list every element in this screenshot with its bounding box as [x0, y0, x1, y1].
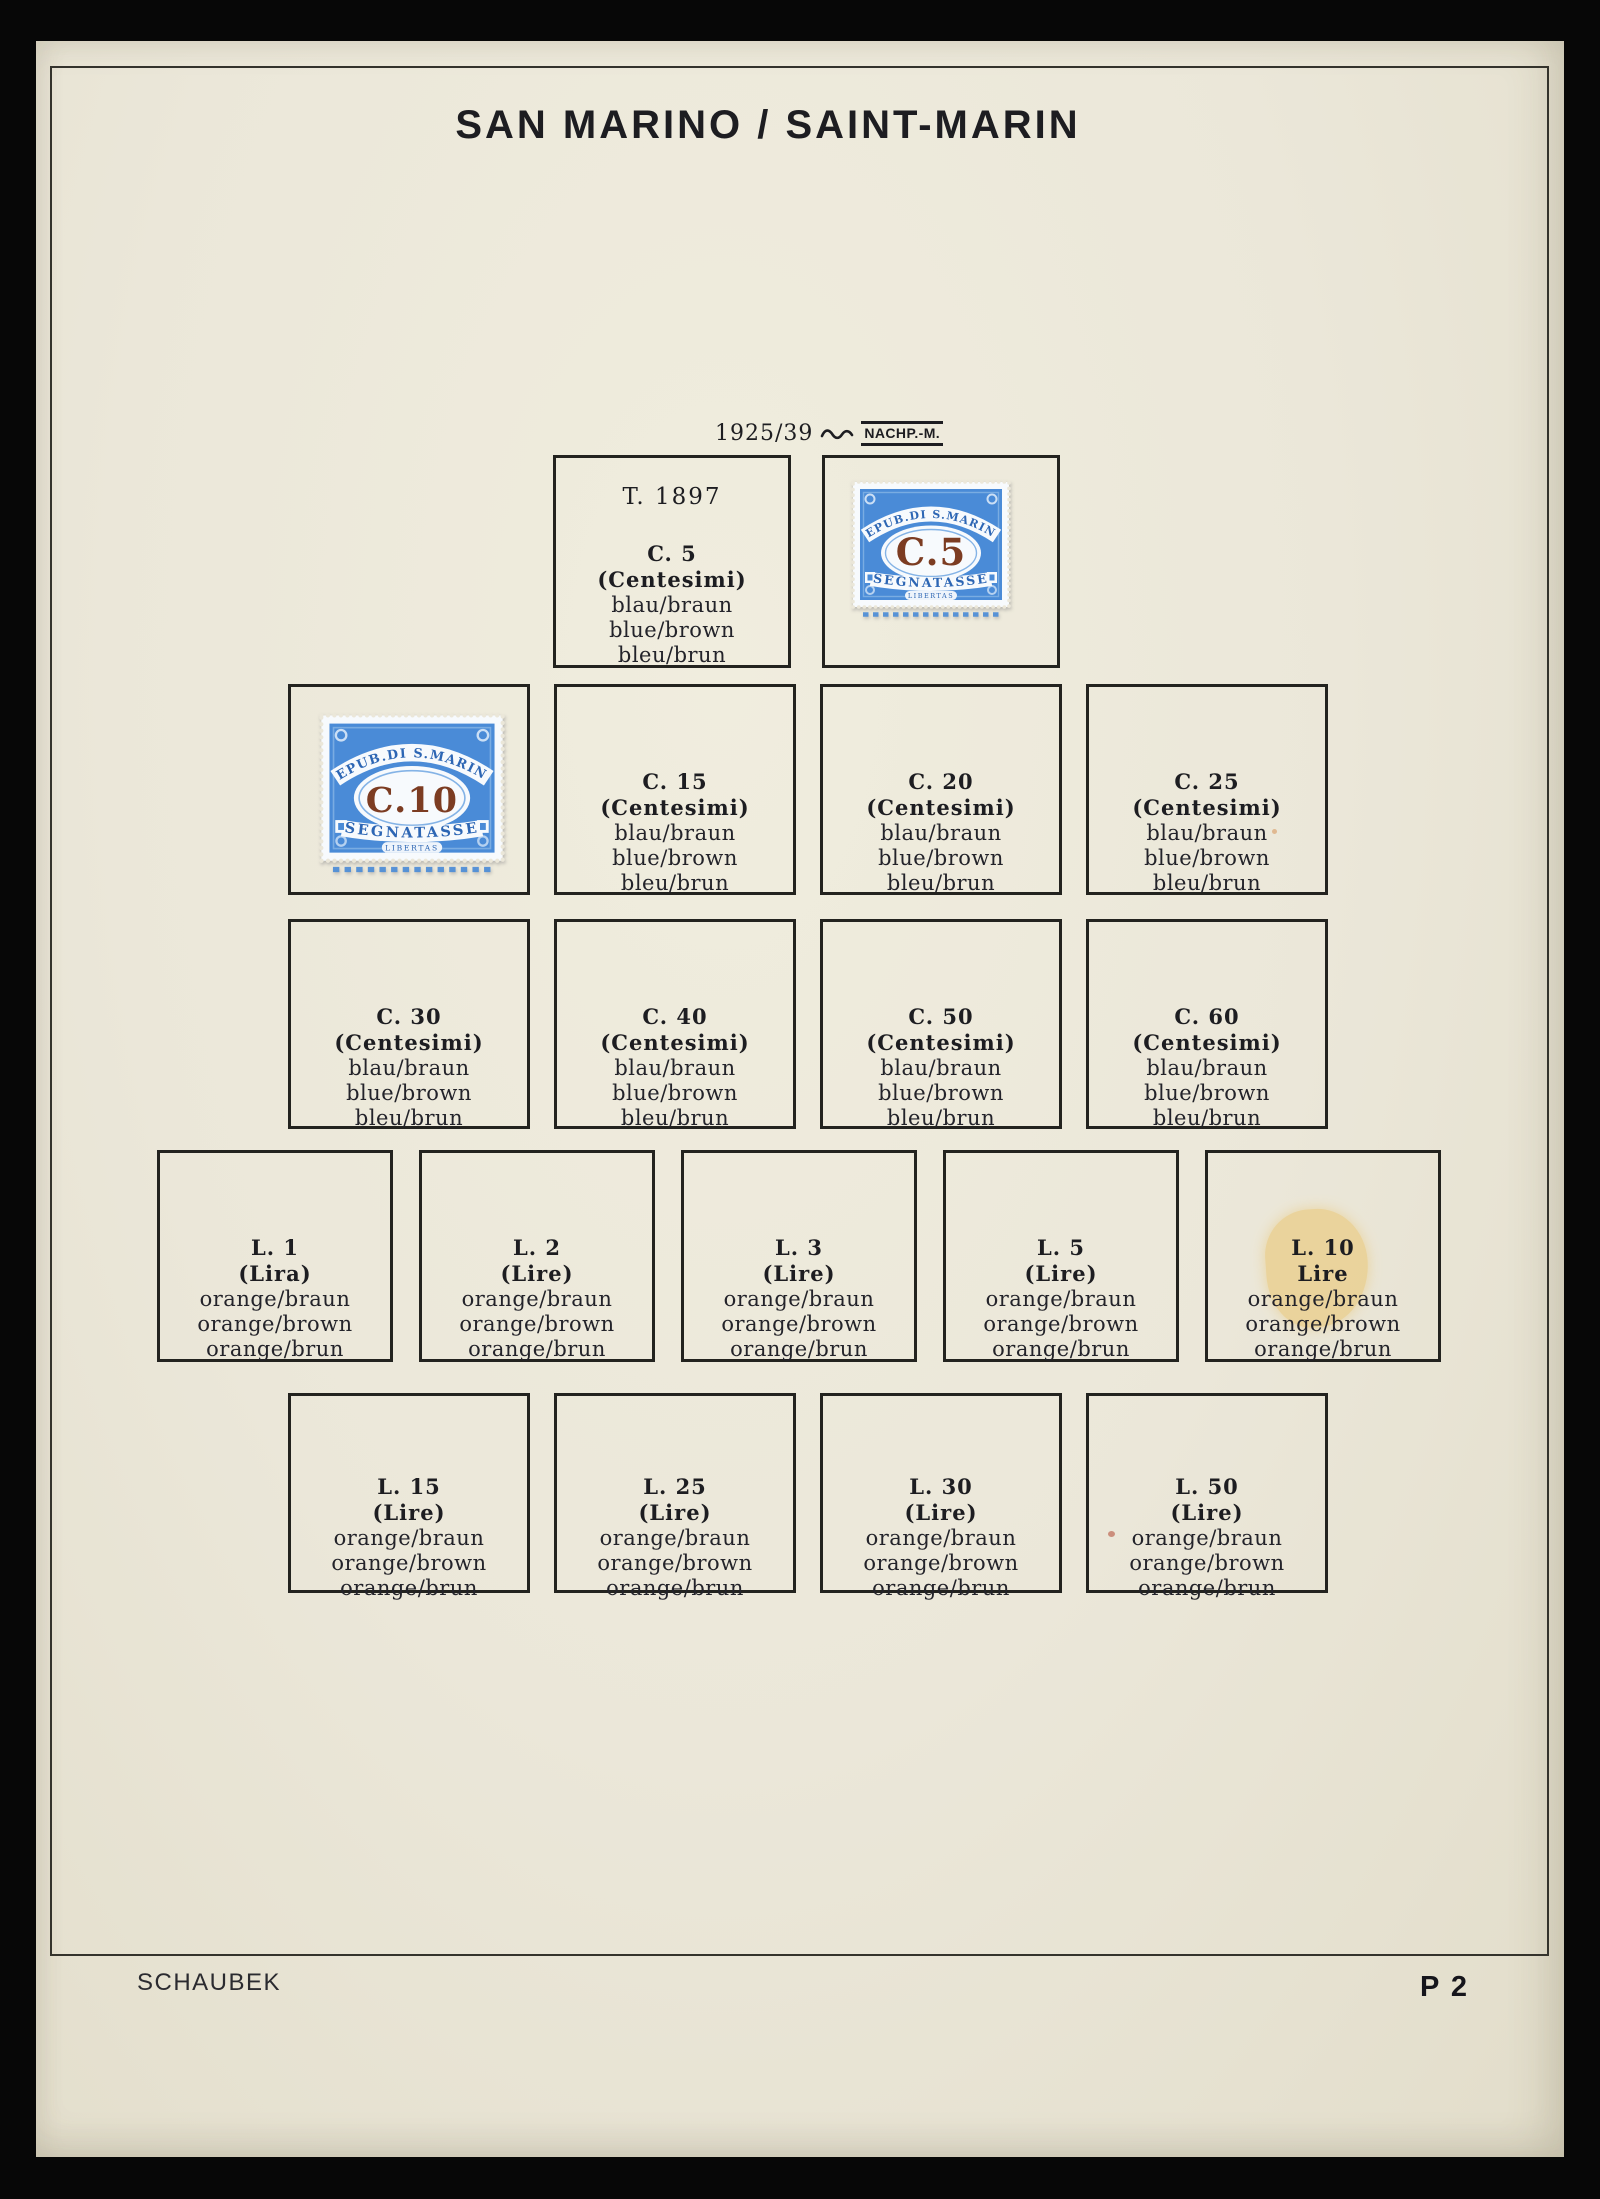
denomination-label: C. 25 [1089, 769, 1325, 795]
series-header: 1925/39 NACHP.-M. [715, 421, 943, 446]
stamp-description: C. 15(Centesimi)blau/braunblue/brownbleu… [557, 769, 793, 896]
stamp-description: L. 3(Lire)orange/braunorange/brownorange… [684, 1235, 914, 1362]
currency-label: (Centesimi) [557, 795, 793, 821]
stamp-description: C. 50(Centesimi)blau/braunblue/brownbleu… [823, 1004, 1059, 1131]
currency-label: (Lire) [823, 1500, 1059, 1526]
denomination-label: L. 50 [1089, 1474, 1325, 1500]
color-description: orange/braun [557, 1526, 793, 1551]
currency-label: (Lire) [422, 1261, 652, 1287]
currency-label: (Lire) [1089, 1500, 1325, 1526]
denomination-label: L. 5 [946, 1235, 1176, 1261]
stamp-slot-c5: REPUB.DI S.MARINO C.5 SEGNATASSE LIBERTA… [822, 455, 1060, 668]
color-description: orange/brown [823, 1551, 1059, 1576]
stamp-description: L. 5(Lire)orange/braunorange/brownorange… [946, 1235, 1176, 1362]
currency-label: (Centesimi) [1089, 795, 1325, 821]
color-description: blau/braun [823, 1056, 1059, 1081]
denomination-label: C. 20 [823, 769, 1059, 795]
stamp-slot-c60: C. 60(Centesimi)blau/braunblue/brownbleu… [1086, 919, 1328, 1129]
color-description: orange/braun [1089, 1526, 1325, 1551]
stamp-description: L. 50(Lire)orange/braunorange/brownorang… [1089, 1474, 1325, 1601]
denomination-label: C. 5 [556, 541, 788, 567]
color-description: blue/brown [291, 1081, 527, 1106]
stamp-slot-l3: L. 3(Lire)orange/braunorange/brownorange… [681, 1150, 917, 1362]
stamp-description: L. 15(Lire)orange/braunorange/brownorang… [291, 1474, 527, 1601]
color-description: orange/brown [291, 1551, 527, 1576]
denomination-label: L. 15 [291, 1474, 527, 1500]
stamp-slot-c40: C. 40(Centesimi)blau/braunblue/brownbleu… [554, 919, 796, 1129]
color-description: orange/brun [557, 1576, 793, 1601]
color-description: orange/brun [160, 1337, 390, 1362]
color-description: blue/brown [823, 846, 1059, 871]
stamp-description: C. 40(Centesimi)blau/braunblue/brownbleu… [557, 1004, 793, 1131]
color-description: orange/braun [422, 1287, 652, 1312]
denomination-label: L. 1 [160, 1235, 390, 1261]
color-description: blau/braun [556, 593, 788, 618]
mounted-stamp: REPUB.DI S.MARINO C.5 SEGNATASSE LIBERTA… [851, 480, 1011, 624]
svg-text:C.5: C.5 [896, 530, 966, 574]
currency-label: (Centesimi) [1089, 1030, 1325, 1056]
color-description: orange/brown [1208, 1312, 1438, 1337]
color-description: blue/brown [557, 1081, 793, 1106]
currency-label: (Lire) [557, 1500, 793, 1526]
color-description: orange/brown [684, 1312, 914, 1337]
color-description: blau/braun [1089, 821, 1325, 846]
stamp-description: L. 25(Lire)orange/braunorange/brownorang… [557, 1474, 793, 1601]
color-description: orange/braun [823, 1526, 1059, 1551]
color-description: blau/braun [557, 821, 793, 846]
currency-label: (Centesimi) [823, 1030, 1059, 1056]
color-description: bleu/brun [557, 871, 793, 896]
denomination-label: C. 15 [557, 769, 793, 795]
color-description: blau/braun [291, 1056, 527, 1081]
stamp-slot-l5: L. 5(Lire)orange/braunorange/brownorange… [943, 1150, 1179, 1362]
color-description: orange/brun [1208, 1337, 1438, 1362]
stamp-description: L. 10Lireorange/braunorange/brownorange/… [1208, 1235, 1438, 1362]
stamp-slot-c15: C. 15(Centesimi)blau/braunblue/brownbleu… [554, 684, 796, 895]
stamp-slot-l2: L. 2(Lire)orange/braunorange/brownorange… [419, 1150, 655, 1362]
wave-separator-icon [820, 427, 854, 441]
color-description: blue/brown [1089, 846, 1325, 871]
denomination-label: L. 3 [684, 1235, 914, 1261]
svg-text:C.10: C.10 [366, 780, 458, 821]
color-description: orange/brun [291, 1576, 527, 1601]
currency-label: (Lire) [684, 1261, 914, 1287]
color-description: orange/brun [946, 1337, 1176, 1362]
denomination-label: L. 25 [557, 1474, 793, 1500]
currency-label: (Lire) [946, 1261, 1176, 1287]
denomination-label: L. 2 [422, 1235, 652, 1261]
mounted-stamp: REPUB.DI S.MARINO C.10 SEGNATASSE LIBERT… [319, 713, 505, 880]
stamp-slot-c50: C. 50(Centesimi)blau/braunblue/brownbleu… [820, 919, 1062, 1129]
color-description: bleu/brun [823, 871, 1059, 896]
color-description: blue/brown [1089, 1081, 1325, 1106]
currency-label: (Lira) [160, 1261, 390, 1287]
color-description: bleu/brun [557, 1106, 793, 1131]
stamp-slot-l15: L. 15(Lire)orange/braunorange/brownorang… [288, 1393, 530, 1593]
stamp-slot-l30: L. 30(Lire)orange/braunorange/brownorang… [820, 1393, 1062, 1593]
publisher-imprint: SCHAUBEK [137, 1969, 281, 1997]
color-description: orange/braun [1208, 1287, 1438, 1312]
stamp-slot-l50: L. 50(Lire)orange/braunorange/brownorang… [1086, 1393, 1328, 1593]
scanned-album-page: SAN MARINO / SAINT-MARIN 1925/39 NACHP.-… [0, 0, 1600, 2199]
page-number: P 2 [1420, 1971, 1469, 2004]
stamp-description: C. 30(Centesimi)blau/braunblue/brownbleu… [291, 1004, 527, 1131]
currency-label: (Centesimi) [291, 1030, 527, 1056]
color-description: orange/brown [1089, 1551, 1325, 1576]
stamp-description: L. 1(Lira)orange/braunorange/brownorange… [160, 1235, 390, 1362]
stamp-description: C. 25(Centesimi)blau/braunblue/brownbleu… [1089, 769, 1325, 896]
stamp-slot-c5: T. 1897C. 5(Centesimi)blau/braunblue/bro… [553, 455, 791, 668]
stamp-slot-l1: L. 1(Lira)orange/braunorange/brownorange… [157, 1150, 393, 1362]
color-description: orange/brown [160, 1312, 390, 1337]
color-description: bleu/brun [556, 643, 788, 668]
type-year-note: T. 1897 [556, 484, 788, 510]
denomination-label: L. 10 [1208, 1235, 1438, 1261]
svg-text:LIBERTAS: LIBERTAS [385, 843, 439, 852]
series-years: 1925/39 [715, 421, 813, 446]
page-title: SAN MARINO / SAINT-MARIN [36, 103, 1500, 148]
stamp-description: C. 5(Centesimi)blau/braunblue/brownbleu/… [556, 541, 788, 668]
color-description: blue/brown [557, 846, 793, 871]
currency-label: Lire [1208, 1261, 1438, 1287]
color-description: orange/brown [422, 1312, 652, 1337]
denomination-label: C. 60 [1089, 1004, 1325, 1030]
stamp-description: L. 2(Lire)orange/braunorange/brownorange… [422, 1235, 652, 1362]
stamp-slot-c25: C. 25(Centesimi)blau/braunblue/brownbleu… [1086, 684, 1328, 895]
album-page: SAN MARINO / SAINT-MARIN 1925/39 NACHP.-… [36, 41, 1564, 2157]
currency-label: (Centesimi) [556, 567, 788, 593]
color-description: orange/brun [823, 1576, 1059, 1601]
color-description: bleu/brun [1089, 871, 1325, 896]
color-description: orange/brun [684, 1337, 914, 1362]
stamp-description: C. 20(Centesimi)blau/braunblue/brownbleu… [823, 769, 1059, 896]
color-description: bleu/brun [1089, 1106, 1325, 1131]
color-description: orange/braun [291, 1526, 527, 1551]
currency-label: (Centesimi) [823, 795, 1059, 821]
segnatasse-stamp-c10: REPUB.DI S.MARINO C.10 SEGNATASSE LIBERT… [319, 713, 505, 876]
series-label: NACHP.-M. [861, 421, 943, 446]
stamp-slot-l25: L. 25(Lire)orange/braunorange/brownorang… [554, 1393, 796, 1593]
color-description: blau/braun [557, 1056, 793, 1081]
color-description: orange/braun [160, 1287, 390, 1312]
stamp-slot-c20: C. 20(Centesimi)blau/braunblue/brownbleu… [820, 684, 1062, 895]
color-description: bleu/brun [291, 1106, 527, 1131]
color-description: blue/brown [556, 618, 788, 643]
currency-label: (Centesimi) [557, 1030, 793, 1056]
color-description: blau/braun [823, 821, 1059, 846]
stamp-slot-c10: REPUB.DI S.MARINO C.10 SEGNATASSE LIBERT… [288, 684, 530, 895]
stamp-description: L. 30(Lire)orange/braunorange/brownorang… [823, 1474, 1059, 1601]
color-description: orange/braun [684, 1287, 914, 1312]
currency-label: (Lire) [291, 1500, 527, 1526]
color-description: blue/brown [823, 1081, 1059, 1106]
color-description: orange/brown [946, 1312, 1176, 1337]
color-description: orange/brun [1089, 1576, 1325, 1601]
denomination-label: L. 30 [823, 1474, 1059, 1500]
denomination-label: C. 50 [823, 1004, 1059, 1030]
svg-text:LIBERTAS: LIBERTAS [908, 592, 954, 600]
color-description: orange/brown [557, 1551, 793, 1576]
denomination-label: C. 30 [291, 1004, 527, 1030]
color-description: orange/braun [946, 1287, 1176, 1312]
denomination-label: C. 40 [557, 1004, 793, 1030]
color-description: blau/braun [1089, 1056, 1325, 1081]
color-description: bleu/brun [823, 1106, 1059, 1131]
stamp-slot-l10: L. 10Lireorange/braunorange/brownorange/… [1205, 1150, 1441, 1362]
color-description: orange/brun [422, 1337, 652, 1362]
segnatasse-stamp-c5: REPUB.DI S.MARINO C.5 SEGNATASSE LIBERTA… [851, 480, 1011, 620]
stamp-slot-c30: C. 30(Centesimi)blau/braunblue/brownbleu… [288, 919, 530, 1129]
stamp-description: C. 60(Centesimi)blau/braunblue/brownbleu… [1089, 1004, 1325, 1131]
